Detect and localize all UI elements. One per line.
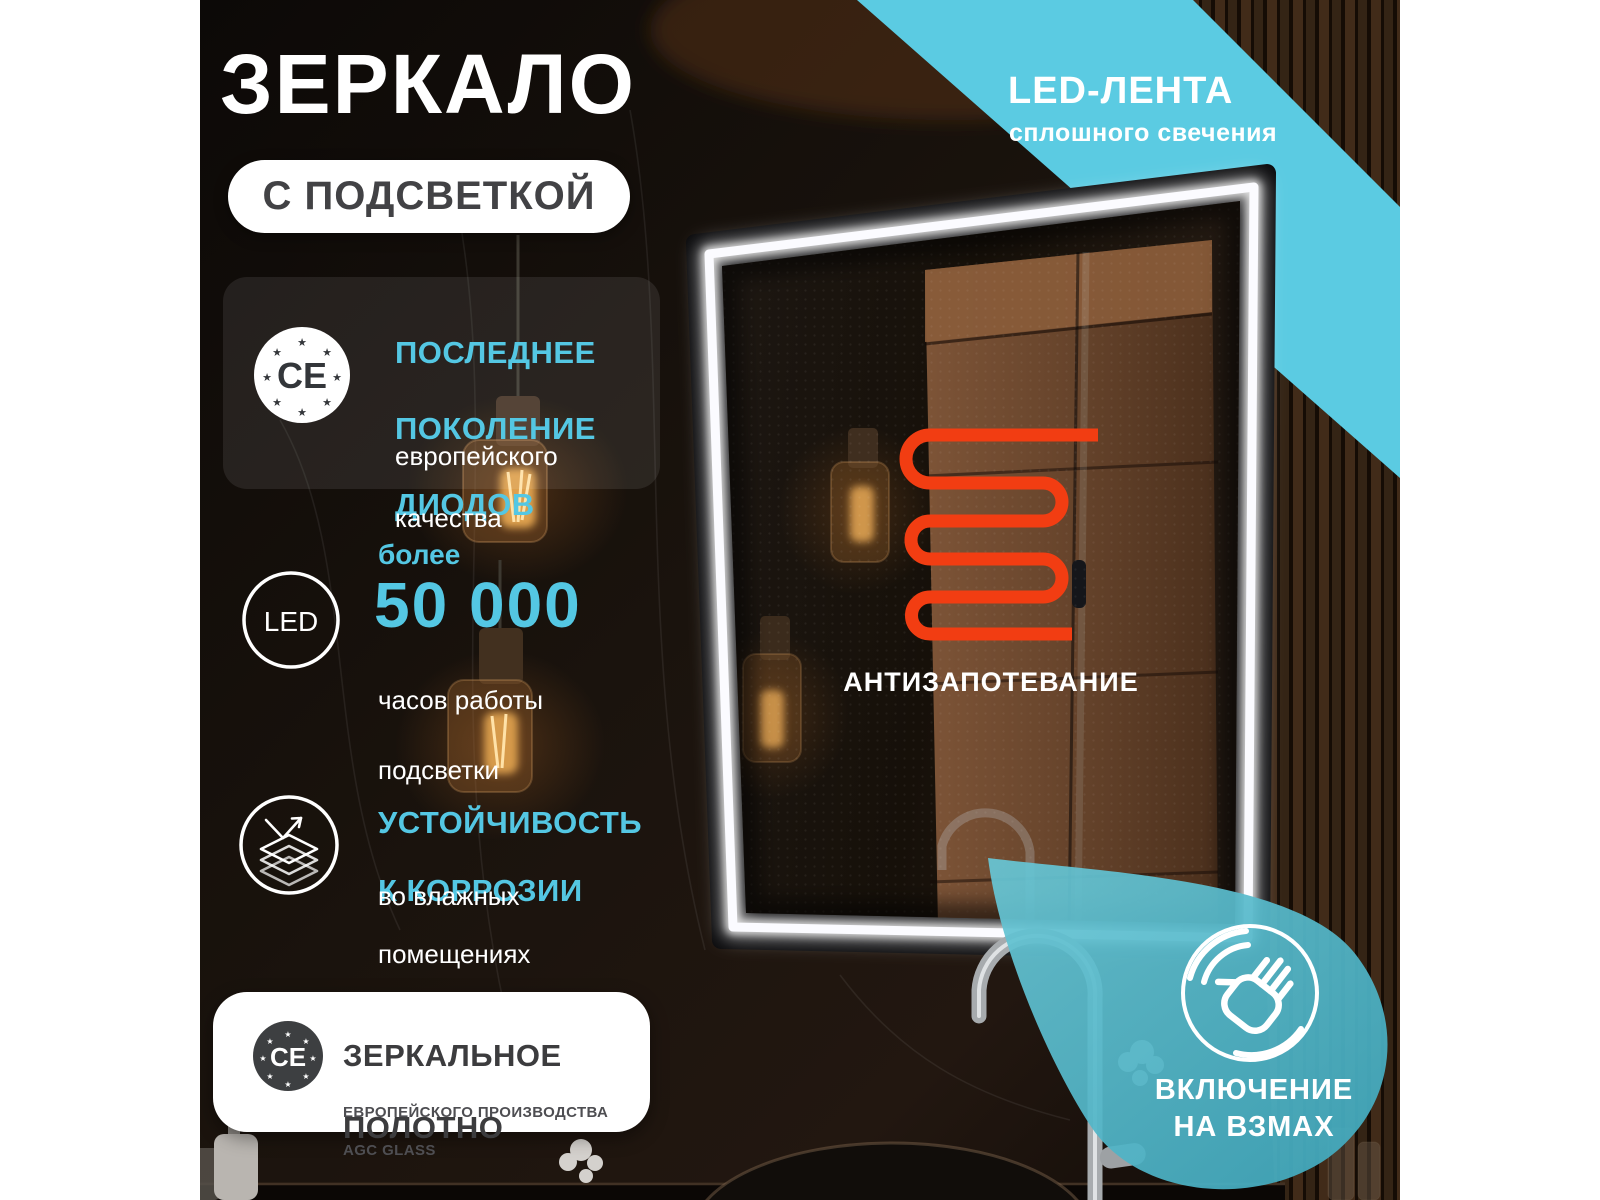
svg-text:★: ★ [266,1072,273,1081]
wave-badge-line2: НА ВЗМАХ [1150,1111,1358,1144]
page-title: ЗЕРКАЛО [218,40,638,128]
led-letters: LED [264,606,318,637]
subtitle-pill-label: С ПОДСВЕТКОЙ [263,174,596,219]
antifog-label: АНТИЗАПОТЕВАНИЕ [840,667,1142,698]
wave-badge-line1: ВКЛЮЧЕНИЕ [1150,1074,1358,1107]
svg-text:★: ★ [332,372,342,384]
feature-corrosion-sub: во влажных помещениях [378,853,530,998]
svg-text:CE: CE [270,1042,306,1072]
svg-text:★: ★ [309,1054,316,1063]
product-banner: CE ★★ ★★ ★★ ★★ LED [0,0,1600,1200]
soap-bottle [214,1134,258,1200]
svg-text:★: ★ [322,397,332,409]
svg-text:★: ★ [272,347,282,359]
bottom-card-sub: ЕВРОПЕЙСКОГО ПРОИЗВОДСТВА AGC GLASS [343,1084,608,1179]
svg-text:★: ★ [266,1037,273,1046]
svg-text:★: ★ [272,397,282,409]
feature-hours-value: 50 000 [374,568,582,642]
ce-dark-icon-top: CE ★★ ★★ ★★ ★★ [245,1013,331,1099]
svg-text:★: ★ [284,1030,291,1039]
svg-text:★: ★ [259,1054,266,1063]
svg-text:★: ★ [302,1072,309,1081]
svg-text:★: ★ [297,337,307,349]
svg-text:★: ★ [302,1037,309,1046]
ribbon-title: LED-ЛЕНТА [1008,70,1233,113]
feature-hours-pre: более [378,539,460,571]
svg-text:★: ★ [322,347,332,359]
ce-certified-icon: CE ★★ ★★ ★★ ★★ [254,327,350,423]
svg-text:★: ★ [284,1080,291,1089]
ribbon-subtitle: сплошного свечения [1009,119,1277,148]
svg-text:★: ★ [262,372,272,384]
subtitle-pill: С ПОДСВЕТКОЙ [228,160,630,233]
photo-canvas: CE ★★ ★★ ★★ ★★ LED [200,0,1400,1200]
ce-letters: CE [277,355,327,396]
svg-text:★: ★ [297,407,307,419]
